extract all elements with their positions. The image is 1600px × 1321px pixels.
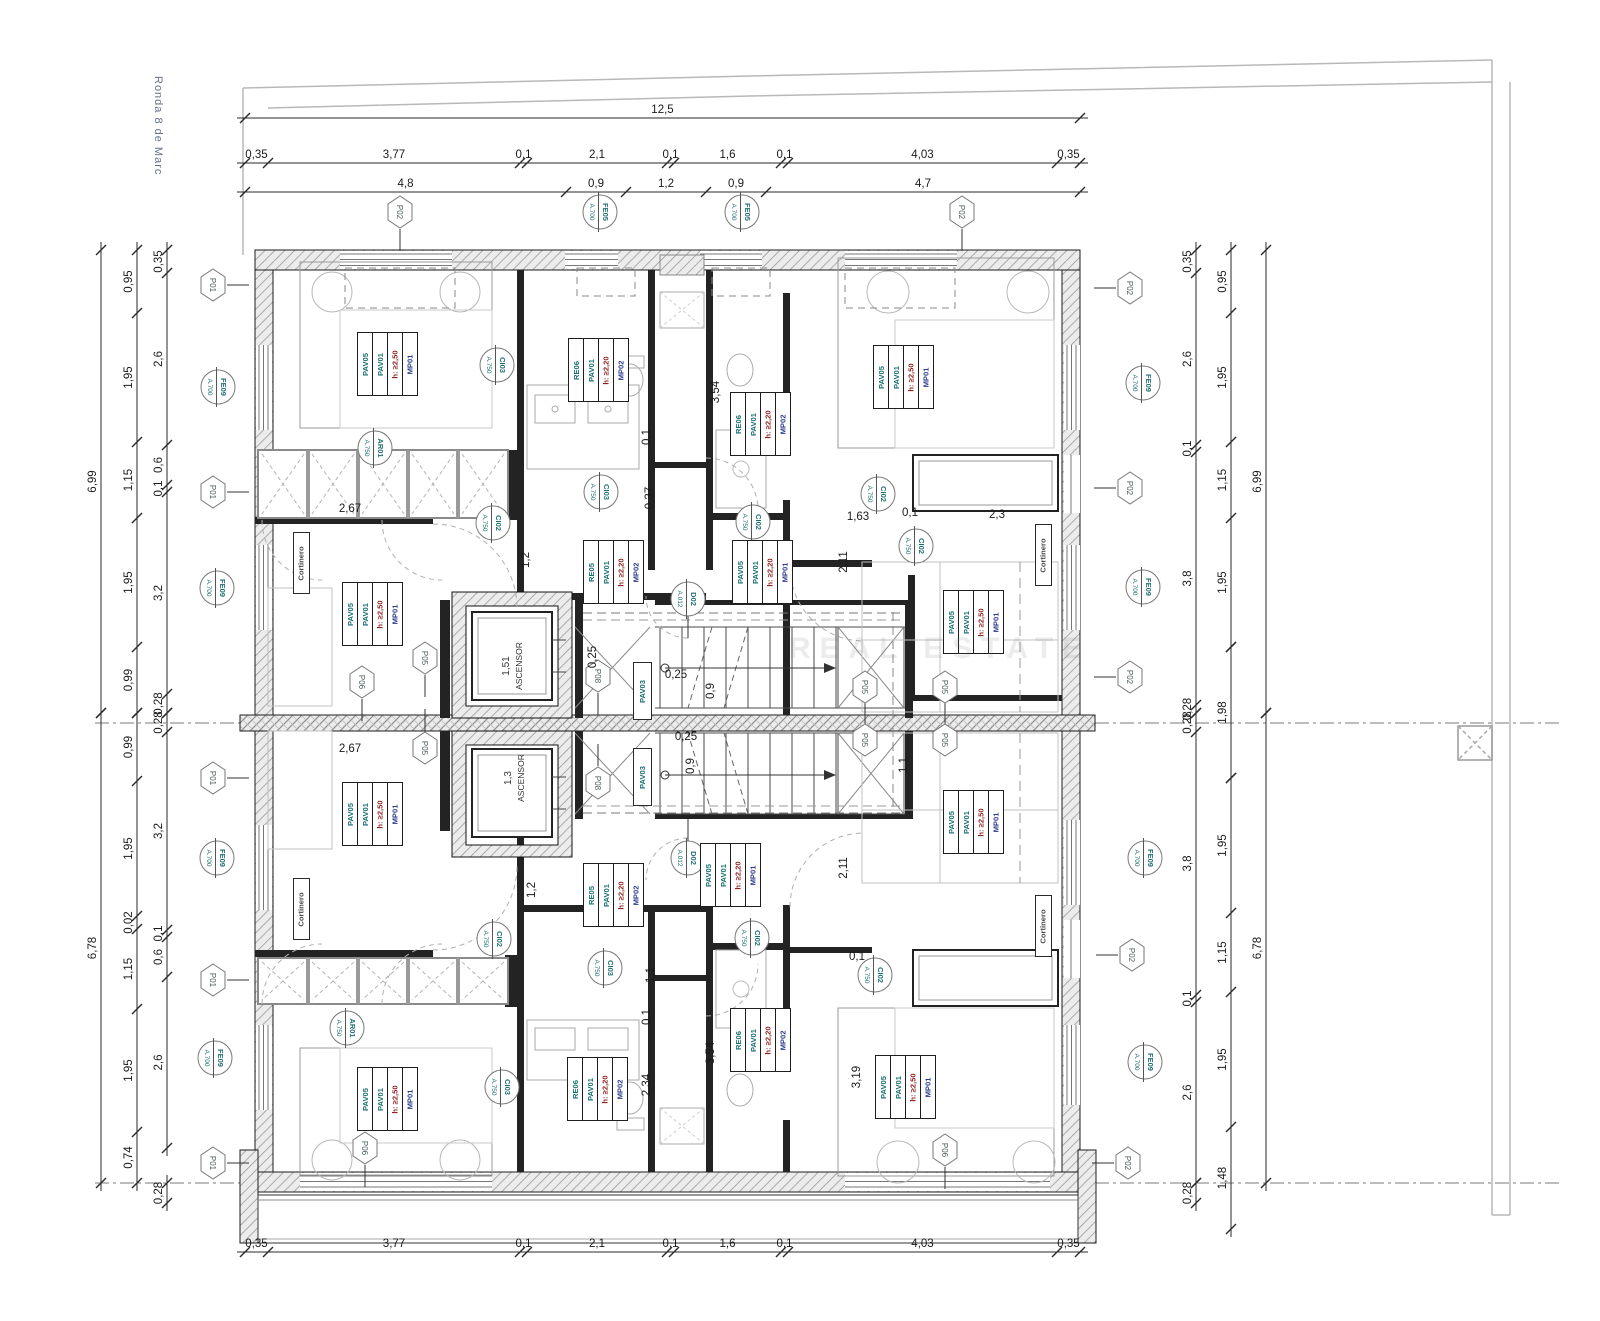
room-finish-tag-cell: h: ≥2,20	[614, 864, 629, 926]
dim-label: 3,77	[383, 149, 405, 161]
circle-marker-sheet: A.750	[485, 357, 492, 374]
circle-marker-code: CI02	[754, 514, 763, 530]
room-finish-tag: RE06PAV01h: ≥2,20MP02	[730, 392, 791, 456]
elevator-upper	[452, 592, 572, 718]
dim-label: 0,1	[663, 1238, 679, 1250]
dim-label: 6,99	[87, 470, 99, 492]
room-finish-tag-text: h: ≥2,50	[909, 1073, 918, 1101]
hex-marker-label: P01	[208, 278, 217, 293]
dim-label: 3,77	[383, 1238, 405, 1250]
room-finish-tag-text: MP02	[632, 885, 641, 905]
small-tag-text: PAV03	[638, 680, 647, 703]
interior-dim-label: 1,1	[645, 967, 657, 983]
room-finish-tag-cell: PAV05	[874, 346, 889, 408]
circle-marker-sheet: A.750	[490, 1079, 497, 1096]
circle-marker-code: FE09	[1144, 578, 1153, 596]
dim-label: 0,02	[123, 911, 135, 933]
cortinero-tag: Cortinero	[293, 532, 310, 594]
dim-label: 6,99	[1252, 470, 1264, 492]
room-finish-tag-text: PAV01	[749, 1029, 758, 1052]
room-finish-tag-text: PAV01	[894, 1076, 903, 1099]
circle-marker-code: D02	[689, 592, 698, 606]
interior-dim-label: 2,11	[838, 857, 850, 879]
room-finish-tag-cell: MP01	[989, 791, 1003, 853]
room-finish-tag: RE05PAV01h: ≥2,20MP02	[583, 863, 644, 927]
hex-marker: P01	[201, 762, 225, 794]
circle-marker-code: CI02	[495, 931, 504, 947]
interior-dim-label: 0,9	[705, 683, 717, 699]
circle-marker-sheet: A.750	[593, 960, 600, 977]
room-finish-tag-cell: MP01	[919, 346, 933, 408]
interior-dim-label: 2,67	[339, 503, 361, 515]
dim-label: 0,35	[1057, 1238, 1079, 1250]
room-finish-tag: PAV05PAV01h: ≥2,50MP01	[875, 1055, 936, 1119]
hex-marker: P08	[586, 767, 610, 799]
room-finish-tag-cell: h: ≥2,20	[614, 541, 629, 603]
room-finish-tag-cell: MP02	[613, 1058, 627, 1120]
interior-dim-label: 0,1	[641, 429, 653, 445]
circle-marker-code: FE09	[1146, 1053, 1155, 1071]
room-finish-tag-text: PAV01	[962, 611, 971, 634]
room-finish-tag-text: PAV01	[719, 864, 728, 887]
room-finish-tag-cell: MP02	[629, 864, 643, 926]
small-tag-text: Cortinero	[297, 546, 306, 580]
room-finish-tag-text: MP02	[616, 1079, 625, 1099]
room-finish-tag-cell: PAV01	[716, 844, 731, 906]
room-finish-tag-text: MP02	[779, 414, 788, 434]
room-finish-tag-text: PAV05	[947, 811, 956, 834]
hex-marker-label: P05	[860, 680, 869, 695]
room-finish-tag-text: PAV01	[586, 1078, 595, 1101]
dim-label: 0,35	[245, 1238, 267, 1250]
room-finish-tag: PAV05PAV01h: ≥2,50MP01	[342, 782, 403, 846]
circle-marker: FE05A.700	[583, 192, 617, 232]
interior-dim-label: 3,54	[705, 1041, 717, 1064]
dim-label: 3,2	[153, 585, 165, 601]
circle-marker-code: FE09	[1144, 374, 1153, 392]
room-finish-tag-cell: PAV05	[358, 1068, 373, 1130]
hex-marker: P06	[933, 1134, 957, 1166]
room-finish-tag-cell: h: ≥2,50	[906, 1056, 921, 1118]
stair-finish-tag: PAV03	[633, 748, 652, 806]
dim-label: 1,98	[1217, 701, 1229, 723]
dim-label: 1,95	[123, 571, 135, 593]
room-finish-tag-text: h: ≥2,20	[602, 356, 611, 384]
dim-label: 2,1	[589, 149, 605, 161]
circle-marker-code: CI03	[498, 357, 507, 373]
watermark: REAL ESTATE	[740, 632, 1140, 666]
room-finish-tag-cell: RE06	[568, 1058, 583, 1120]
room-finish-tag-text: MP01	[922, 367, 931, 387]
room-finish-tag-cell: PAV01	[373, 333, 388, 395]
dim-label: 1,95	[1217, 366, 1229, 388]
room-finish-tag-text: h: ≥2,50	[376, 600, 385, 628]
room-finish-tag: RE06PAV01h: ≥2,20MP02	[730, 1008, 791, 1072]
hex-marker-label: P01	[208, 485, 217, 500]
hex-marker: P01	[201, 269, 225, 301]
room-finish-tag-text: MP01	[992, 812, 1001, 832]
circle-marker-sheet: A.750	[481, 515, 488, 532]
room-finish-tag-cell: MP02	[629, 541, 643, 603]
stair-finish-tag: PAV03	[633, 662, 652, 720]
circle-marker-sheet: A.700	[730, 204, 737, 221]
cortinero-tag: Cortinero	[1035, 895, 1052, 957]
dim-label: 4,8	[398, 178, 414, 190]
elevator-dim: 1,51	[501, 656, 512, 676]
room-finish-tag-cell: h: ≥2,50	[388, 1068, 403, 1130]
dim-label: 1,95	[123, 1059, 135, 1081]
hex-marker: P06	[350, 666, 374, 698]
room-finish-tag-text: MP01	[391, 804, 400, 824]
dim-label: 0,6	[153, 949, 165, 965]
hex-marker-label: P06	[360, 1141, 369, 1156]
circle-marker-sheet: A.750	[863, 967, 870, 984]
hex-marker-label: P01	[208, 771, 217, 786]
dim-label: 0,6	[153, 457, 165, 473]
circle-marker-sheet: A.750	[482, 931, 489, 948]
hex-marker: P02	[1118, 472, 1142, 504]
circle-marker-sheet: A.750	[740, 930, 747, 947]
hex-marker: P02	[1118, 272, 1142, 304]
dim-label: 1,95	[123, 366, 135, 388]
hex-marker-label: P05	[420, 651, 429, 666]
room-finish-tag-cell: h: ≥2,50	[974, 791, 989, 853]
room-finish-tag-cell: RE06	[731, 1009, 746, 1071]
hex-marker-label: P06	[357, 675, 366, 690]
dim-label: 0,1	[1182, 441, 1194, 457]
dim-label: 0,28	[153, 711, 165, 733]
room-finish-tag-text: PAV05	[346, 603, 355, 626]
room-finish-tag-cell: h: ≥2,20	[761, 1009, 776, 1071]
dim-label: 0,35	[1057, 149, 1079, 161]
room-finish-tag-text: PAV05	[361, 353, 370, 376]
dim-label: 0,28	[153, 1182, 165, 1204]
interior-dim-label: 3,54	[710, 380, 722, 403]
room-finish-tag-text: MP01	[406, 354, 415, 374]
circle-marker-code: CI02	[494, 515, 503, 531]
interior-dim-label: 2,11	[838, 551, 850, 573]
room-finish-tag-text: PAV05	[346, 803, 355, 826]
room-finish-tag-text: MP02	[632, 562, 641, 582]
room-finish-tag-text: PAV01	[587, 359, 596, 382]
hex-marker: P06	[353, 1132, 377, 1164]
circle-marker-sheet: A.700	[588, 204, 595, 221]
room-finish-tag: PAV05PAV01h: ≥2,50MP01	[357, 332, 418, 396]
room-finish-tag-cell: h: ≥2,50	[373, 583, 388, 645]
interior-dim-label: 0,1	[641, 1009, 653, 1025]
circle-marker: CI03A.750	[584, 472, 618, 512]
small-tag-text: PAV03	[638, 766, 647, 789]
room-finish-tag-cell: PAV01	[891, 1056, 906, 1118]
interior-dim-label: 1,2	[526, 882, 538, 898]
circle-marker: CI02A.750	[861, 474, 895, 514]
hex-marker-label: P05	[940, 733, 949, 748]
room-finish-tag-text: MP02	[617, 360, 626, 380]
room-finish-tag-cell: PAV01	[746, 1009, 761, 1071]
circle-marker-code: FE05	[743, 203, 752, 221]
room-finish-tag-cell: PAV05	[343, 583, 358, 645]
room-finish-tag-cell: PAV01	[746, 393, 761, 455]
room-finish-tag-text: PAV01	[602, 884, 611, 907]
hex-marker-label: P08	[593, 669, 602, 684]
room-finish-tag-cell: h: ≥2,20	[763, 541, 778, 603]
hex-marker: P02	[950, 196, 974, 228]
dim-label: 1,2	[658, 178, 674, 190]
room-finish-tag: PAV05PAV01h: ≥2,50MP01	[357, 1067, 418, 1131]
circle-marker: CI02A.750	[477, 919, 511, 959]
circle-marker: FE09A.700	[200, 568, 234, 608]
circle-marker-sheet: A.700	[1133, 1054, 1140, 1071]
room-finish-tag-text: MP01	[391, 604, 400, 624]
room-finish-tag-cell: PAV05	[876, 1056, 891, 1118]
hex-marker-label: P08	[593, 776, 602, 791]
room-finish-tag-cell: PAV05	[701, 844, 716, 906]
room-finish-tag-text: MP01	[406, 1089, 415, 1109]
circle-marker: CI02A.750	[735, 918, 769, 958]
floor-plan: 12,50,353,770,12,10,11,60,14,030,354,80,…	[0, 0, 1600, 1321]
circle-marker-sheet: A.750	[866, 486, 873, 503]
hex-marker: P05	[853, 671, 877, 703]
room-finish-tag-text: h: ≥2,20	[617, 881, 626, 909]
small-tag-text: Cortinero	[1039, 538, 1048, 572]
room-finish-tag-text: PAV01	[376, 353, 385, 376]
room-finish-tag-cell: PAV01	[373, 1068, 388, 1130]
dim-label: 1,95	[123, 837, 135, 859]
dim-label: 2,6	[1182, 351, 1194, 367]
room-finish-tag-cell: MP02	[614, 339, 628, 401]
room-finish-tag-cell: PAV01	[889, 346, 904, 408]
dim-label: 0,9	[588, 178, 604, 190]
dim-label: 0,95	[1217, 270, 1229, 292]
room-finish-tag-text: h: ≥2,20	[764, 410, 773, 438]
interior-dim-label: 2,67	[339, 743, 361, 755]
room-finish-tag-text: h: ≥2,20	[766, 558, 775, 586]
dim-label: 0,1	[777, 149, 793, 161]
room-finish-tag-text: PAV01	[602, 561, 611, 584]
room-finish-tag-text: PAV05	[736, 561, 745, 584]
dim-label: 0,99	[123, 669, 135, 691]
room-finish-tag-text: PAV01	[751, 561, 760, 584]
room-finish-tag-text: MP01	[924, 1077, 933, 1097]
hex-marker-label: P01	[208, 1156, 217, 1171]
circle-marker: FE09A.700	[1126, 363, 1160, 403]
dim-label: 6,78	[1252, 937, 1264, 959]
circle-marker-code: FE09	[219, 378, 228, 396]
room-finish-tag-cell: h: ≥2,20	[731, 844, 746, 906]
room-finish-tag-cell: RE05	[584, 864, 599, 926]
dim-label: 0,1	[153, 481, 165, 497]
circle-marker-sheet: A.750	[904, 538, 911, 555]
circle-marker: FE09A.700	[201, 367, 235, 407]
circle-marker-code: FE05	[601, 203, 610, 221]
circle-marker: CI03A.750	[480, 345, 514, 385]
room-finish-tag-text: PAV05	[361, 1088, 370, 1111]
circle-marker-sheet: A.700	[205, 850, 212, 867]
room-finish-tag-cell: h: ≥2,20	[599, 339, 614, 401]
dim-label: 1,48	[1217, 1167, 1229, 1189]
room-finish-tag-text: h: ≥2,20	[734, 861, 743, 889]
circle-marker-code: D02	[689, 851, 698, 865]
interior-dim-label: 2,34	[641, 1073, 653, 1096]
room-finish-tag-cell: RE05	[584, 541, 599, 603]
hex-marker-label: P02	[1125, 670, 1134, 685]
room-finish-tag-text: RE05	[587, 886, 596, 905]
room-finish-tag-cell: h: ≥2,50	[373, 783, 388, 845]
dim-label: 3,8	[1182, 856, 1194, 872]
dim-label: 3,8	[1182, 571, 1194, 587]
hex-marker: P02	[1116, 1147, 1140, 1179]
circle-marker-code: CI03	[602, 484, 611, 500]
elevator-label: ASCENSOR	[514, 642, 524, 690]
circle-marker: FE09A.700	[200, 838, 234, 878]
dim-label: 0,1	[663, 149, 679, 161]
hex-marker-label: P02	[1127, 948, 1136, 963]
dim-label: 0,1	[777, 1238, 793, 1250]
elevator-lower	[452, 731, 572, 857]
room-finish-tag-text: MP01	[749, 865, 758, 885]
hex-marker: P02	[388, 196, 412, 228]
dim-label: 1,6	[720, 149, 736, 161]
circle-marker-sheet: A.012	[676, 850, 683, 867]
interior-dim-label: 0,37	[644, 487, 656, 509]
room-finish-tag-text: h: ≥2,50	[907, 363, 916, 391]
room-finish-tag-cell: MP01	[403, 333, 417, 395]
room-finish-tag-text: MP02	[779, 1030, 788, 1050]
interior-dim-label: 3,19	[851, 1066, 863, 1088]
interior-dim-label: 0,25	[675, 731, 697, 743]
room-finish-tag-text: MP01	[781, 562, 790, 582]
room-finish-tag-cell: RE06	[731, 393, 746, 455]
hex-marker-label: P01	[208, 973, 217, 988]
room-finish-tag-text: PAV05	[704, 864, 713, 887]
dim-label: 1,95	[1217, 834, 1229, 856]
dim-label: 0,74	[123, 1146, 135, 1169]
circle-marker-code: CI02	[753, 930, 762, 946]
dim-label: 0,1	[1182, 991, 1194, 1007]
room-finish-tag: PAV05PAV01h: ≥2,20MP01	[700, 843, 761, 907]
dim-label: 0,99	[123, 736, 135, 758]
room-finish-tag-text: h: ≥2,50	[376, 800, 385, 828]
circle-marker-sheet: A.700	[205, 580, 212, 597]
elevator-label: ASCENSOR	[516, 754, 526, 802]
hex-marker-label: P05	[940, 680, 949, 695]
room-finish-tag: PAV05PAV01h: ≥2,50MP01	[943, 790, 1004, 854]
room-finish-tag-cell: PAV05	[358, 333, 373, 395]
room-finish-tag: RE05PAV01h: ≥2,20MP02	[583, 540, 644, 604]
room-finish-tag-text: h: ≥2,20	[601, 1075, 610, 1103]
circle-marker-code: CI03	[503, 1079, 512, 1095]
balcony	[258, 1195, 1078, 1243]
circle-marker: FE05A.700	[725, 192, 759, 232]
small-tag-text: Cortinero	[297, 892, 306, 926]
interior-dim-label: 1,2	[520, 552, 532, 568]
circle-marker-code: CI03	[606, 960, 615, 976]
hex-marker: P02	[1120, 939, 1144, 971]
circle-marker-sheet: A.700	[1131, 579, 1138, 596]
circle-marker-sheet: A.750	[335, 1020, 342, 1037]
circle-marker-sheet: A.750	[741, 514, 748, 531]
circle-marker: CI03A.750	[485, 1067, 519, 1107]
room-finish-tag-cell: h: ≥2,50	[388, 333, 403, 395]
room-finish-tag-cell: PAV01	[599, 864, 614, 926]
dim-label: 0,9	[728, 178, 744, 190]
interior-dim-label: 1,63	[847, 511, 869, 523]
cortinero-tag: Cortinero	[293, 878, 310, 940]
circle-marker-code: FE09	[1146, 849, 1155, 867]
circle-marker-code: CI02	[879, 486, 888, 502]
hex-marker: P05	[413, 642, 437, 674]
interior-dim-label: 0,1	[902, 507, 918, 519]
interior-dim-label: 0,25	[587, 646, 599, 668]
dim-label: 1,95	[1217, 1048, 1229, 1070]
interior-dim-label: 2,3	[989, 509, 1005, 521]
dim-label: 1,95	[1217, 571, 1229, 593]
hex-marker-label: P02	[957, 205, 966, 220]
dim-label: 0,28	[1182, 711, 1194, 733]
circle-marker-code: FE09	[218, 579, 227, 597]
dim-label: 6,78	[87, 937, 99, 959]
room-finish-tag-cell: MP01	[778, 541, 792, 603]
interior-dim-label: 0,25	[665, 669, 687, 681]
dim-label: 2,6	[153, 351, 165, 367]
room-finish-tag-cell: PAV05	[733, 541, 748, 603]
room-finish-tag-cell: PAV05	[944, 791, 959, 853]
interior-dim-label: 0,9	[685, 758, 697, 774]
circle-marker-code: CI02	[876, 967, 885, 983]
circle-marker: FE09A.700	[198, 1038, 232, 1078]
room-finish-tag-text: PAV01	[962, 811, 971, 834]
dim-label: 0,35	[153, 250, 165, 272]
dim-label: 0,1	[516, 149, 532, 161]
dim-label: 0,35	[1182, 250, 1194, 272]
room-finish-tag-text: PAV05	[947, 611, 956, 634]
dim-label: 1,15	[1217, 469, 1229, 491]
room-finish-tag: RE06PAV01h: ≥2,20MP02	[568, 338, 629, 402]
dim-label: 0,95	[123, 270, 135, 292]
dim-label: 0,28	[1182, 1182, 1194, 1204]
circle-marker-sheet: A.750	[363, 440, 370, 457]
hex-marker: P01	[201, 1147, 225, 1179]
circle-marker: FE09A.700	[1126, 567, 1160, 607]
dim-label: 1,15	[1217, 941, 1229, 963]
room-finish-tag-text: PAV05	[879, 1076, 888, 1099]
room-finish-tag-text: RE05	[587, 563, 596, 582]
hex-marker-label: P02	[1125, 281, 1134, 296]
room-finish-tag-text: RE06	[572, 361, 581, 380]
circle-marker-sheet: A.012	[676, 591, 683, 608]
room-finish-tag-text: RE06	[734, 1031, 743, 1050]
room-finish-tag-cell: MP01	[403, 1068, 417, 1130]
dim-label: 4,03	[911, 149, 933, 161]
small-tag-text: Cortinero	[1039, 909, 1048, 943]
room-finish-tag-text: h: ≥2,20	[764, 1026, 773, 1054]
circle-marker-code: AR01	[348, 1018, 357, 1037]
dim-label: 1,6	[720, 1238, 736, 1250]
room-finish-tag-cell: MP01	[921, 1056, 935, 1118]
room-finish-tag: PAV05PAV01h: ≥2,50MP01	[873, 345, 934, 409]
room-finish-tag-text: RE06	[571, 1080, 580, 1099]
hex-marker: P01	[201, 476, 225, 508]
reference-markers: P01P01P01P01P01P02P02P02P02P02P02P02P05P…	[198, 192, 1162, 1179]
room-finish-tag-cell: MP01	[388, 783, 402, 845]
room-finish-tag: PAV05PAV01h: ≥2,50MP01	[342, 582, 403, 646]
room-finish-tag-cell: PAV01	[748, 541, 763, 603]
hex-marker-label: P05	[420, 741, 429, 756]
room-finish-tag-cell: MP02	[776, 393, 790, 455]
room-finish-tag: PAV05PAV01h: ≥2,20MP01	[732, 540, 793, 604]
room-finish-tag-text: PAV01	[376, 1088, 385, 1111]
circle-marker-sheet: A.700	[206, 379, 213, 396]
